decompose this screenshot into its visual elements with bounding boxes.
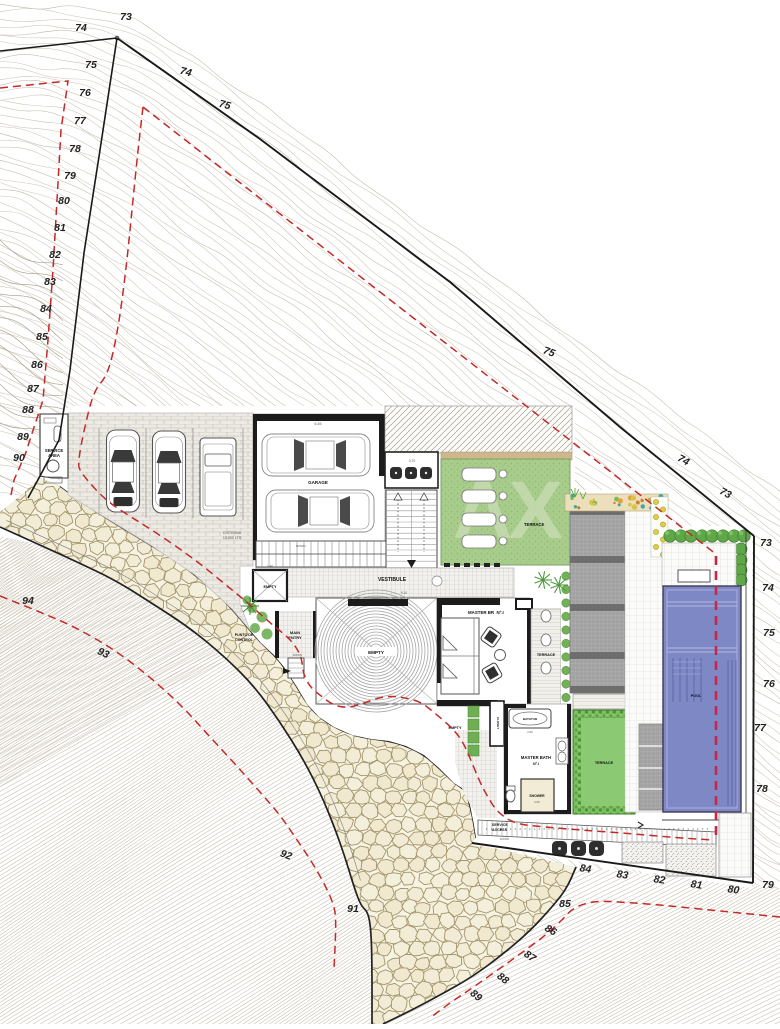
svg-text:85: 85 (559, 898, 571, 910)
svg-text:84: 84 (579, 862, 592, 876)
svg-text:POOL: POOL (691, 694, 702, 698)
svg-text:88: 88 (22, 404, 34, 416)
svg-text:78: 78 (756, 783, 768, 795)
svg-text:TERRACE: TERRACE (537, 653, 556, 657)
svg-text:GARAGE: GARAGE (308, 480, 328, 485)
svg-text:75: 75 (85, 59, 97, 71)
svg-text:79: 79 (762, 879, 774, 891)
svg-text:81: 81 (690, 878, 703, 892)
svg-text:94: 94 (22, 595, 34, 607)
svg-text:2.00: 2.00 (534, 800, 540, 804)
svg-text:82: 82 (653, 873, 666, 887)
svg-text:10,000 LTS: 10,000 LTS (223, 536, 242, 540)
svg-text:BATHTUB: BATHTUB (523, 717, 538, 721)
svg-text:SERVICE: SERVICE (492, 823, 508, 827)
svg-text:EMPTY: EMPTY (263, 585, 277, 589)
svg-text:82: 82 (49, 249, 61, 261)
svg-text:VESTIBULE: VESTIBULE (378, 577, 407, 583)
svg-text:84: 84 (40, 303, 52, 315)
svg-text:77: 77 (754, 722, 767, 734)
svg-text:MASTER BR Nº.I: MASTER BR Nº.I (468, 610, 504, 615)
svg-text:76: 76 (79, 87, 91, 99)
svg-text:TOILET: TOILET (503, 805, 507, 815)
svg-text:74: 74 (762, 582, 774, 594)
svg-text:80: 80 (727, 883, 740, 897)
svg-text:86: 86 (31, 359, 43, 371)
svg-text:6.45: 6.45 (315, 422, 322, 426)
svg-text:78: 78 (69, 143, 81, 155)
svg-text:TERRACE: TERRACE (595, 761, 614, 765)
svg-text:DOWN: DOWN (293, 653, 302, 657)
svg-text:2.00: 2.00 (527, 730, 533, 734)
svg-text:89: 89 (17, 431, 29, 443)
svg-text:CLOSET: CLOSET (496, 717, 500, 729)
svg-text:1.40: 1.40 (267, 564, 273, 568)
svg-text:85: 85 (36, 331, 48, 343)
svg-text:CISTERNA: CISTERNA (223, 531, 242, 535)
svg-text:CONTROL: CONTROL (235, 638, 254, 642)
svg-text:83: 83 (44, 276, 56, 288)
svg-text:75: 75 (763, 627, 775, 639)
svg-text:79: 79 (64, 170, 76, 182)
svg-text:DOWN: DOWN (500, 837, 509, 841)
svg-text:ACCESS: ACCESS (492, 828, 508, 832)
svg-text:87: 87 (27, 383, 40, 395)
svg-text:81: 81 (54, 222, 66, 234)
svg-text:DOWN: DOWN (296, 544, 306, 548)
svg-text:EMPTY: EMPTY (368, 650, 384, 655)
svg-text:73: 73 (760, 537, 772, 549)
svg-text:PUNTO DE: PUNTO DE (235, 633, 254, 637)
svg-text:74: 74 (75, 22, 87, 34)
svg-text:80: 80 (58, 195, 70, 207)
svg-text:3.70: 3.70 (409, 459, 416, 463)
svg-text:73: 73 (120, 11, 132, 23)
svg-text:76: 76 (763, 678, 775, 690)
svg-text:90: 90 (13, 452, 25, 464)
svg-text:77: 77 (74, 115, 87, 127)
svg-text:TERRACE: TERRACE (524, 522, 544, 527)
svg-text:Nº.I: Nº.I (533, 762, 539, 766)
svg-text:SHOWER: SHOWER (529, 794, 545, 798)
svg-text:9.10: 9.10 (401, 591, 407, 595)
svg-text:91: 91 (347, 903, 359, 915)
svg-text:83: 83 (616, 868, 629, 882)
svg-text:MASTER BATH: MASTER BATH (521, 755, 551, 760)
